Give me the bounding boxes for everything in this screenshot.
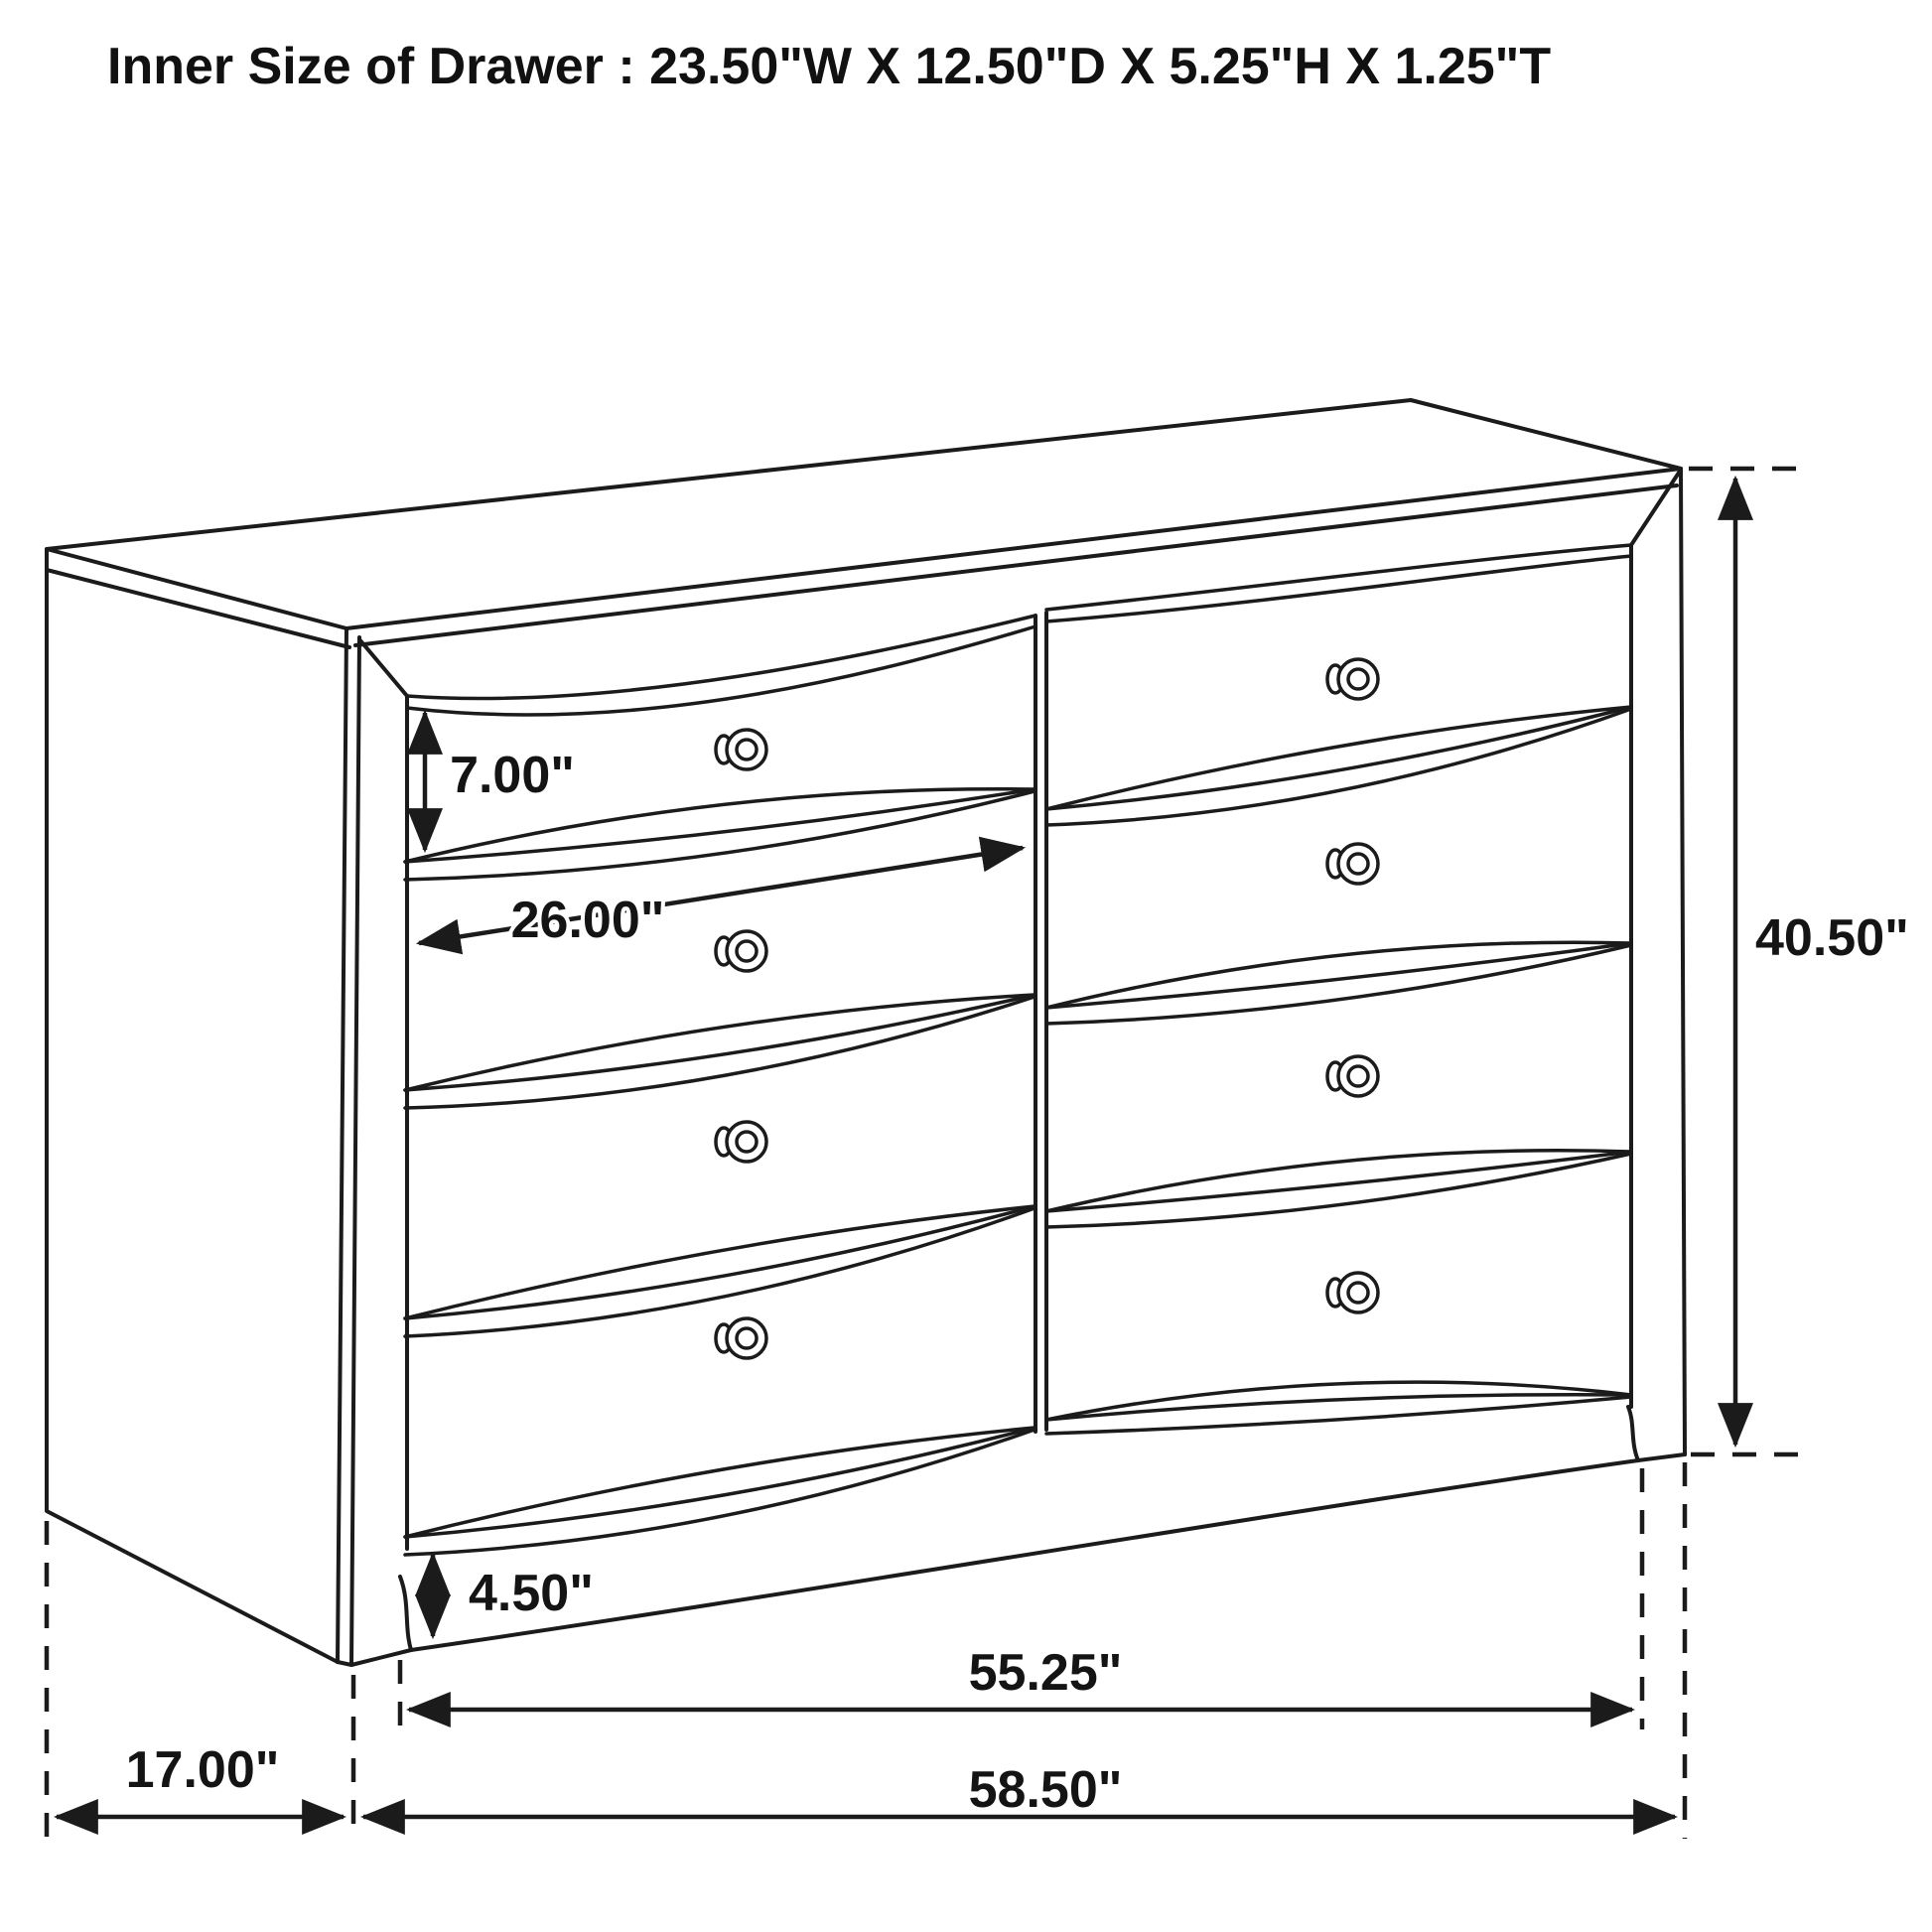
knob-icon xyxy=(1327,844,1378,884)
left-reveal-3 xyxy=(405,1206,1035,1318)
right-reveal-1 xyxy=(1046,707,1631,809)
right-col-top-curve xyxy=(1046,545,1631,610)
right-reveal-1 xyxy=(1046,707,1631,809)
right-reveal-4 xyxy=(1046,1395,1631,1420)
right-foot-bracket xyxy=(1628,1407,1638,1460)
left-reveal-3 xyxy=(405,1208,1035,1336)
knob-icon xyxy=(716,931,766,971)
dresser-dimension-diagram: Inner Size of Drawer : 23.50"W X 12.50"D… xyxy=(0,0,1932,1932)
overall-width-label: 58.50" xyxy=(969,1761,1123,1819)
left-foot-bracket xyxy=(400,1577,411,1650)
left-reveal-2 xyxy=(405,997,1035,1108)
knob-icon xyxy=(716,730,766,769)
right-reveal-3 xyxy=(1046,1154,1631,1227)
knob-icon xyxy=(1327,1056,1378,1096)
base-rail-bottom xyxy=(411,1460,1638,1650)
front-left-stile-outer xyxy=(338,628,346,1662)
front-left-stile-inner xyxy=(351,637,359,1665)
left-reveal-3 xyxy=(405,1206,1035,1318)
left-reveal-4 xyxy=(405,1430,1035,1555)
right-reveal-1 xyxy=(1046,709,1631,825)
arrow-drawer-width xyxy=(419,848,1023,943)
extension-lines xyxy=(47,469,1807,1839)
dresser-outline xyxy=(47,400,1685,1665)
side-panel-edge xyxy=(47,549,338,1662)
overall-height-label: 40.50" xyxy=(1755,909,1909,967)
right-foot-bottom xyxy=(1638,1454,1685,1460)
left-reveal-4 xyxy=(405,1428,1035,1537)
left-reveal-4 xyxy=(405,1428,1035,1537)
top-bevel-left xyxy=(359,639,407,696)
diagram-canvas: Inner Size of Drawer : 23.50"W X 12.50"D… xyxy=(0,0,1932,1932)
knob-icon xyxy=(716,1122,766,1162)
knob-icon xyxy=(1327,1273,1378,1312)
front-width-label: 55.25" xyxy=(969,1644,1123,1702)
top-bevel-right xyxy=(1631,470,1681,545)
right-col-top-curve-2 xyxy=(1046,556,1631,621)
diagram-title: Inner Size of Drawer : 23.50"W X 12.50"D… xyxy=(107,38,1551,95)
front-right-edge xyxy=(1681,469,1685,1454)
side-depth-label: 17.00" xyxy=(126,1741,280,1799)
left-col-top-curve-2 xyxy=(407,626,1035,715)
drawer-front-curves xyxy=(405,545,1631,1555)
drawer-face-height-label: 7.00" xyxy=(450,747,575,804)
base-height-label: 4.50" xyxy=(469,1565,594,1622)
knob-icon xyxy=(716,1318,766,1358)
knob-icon xyxy=(1327,659,1378,699)
drawer-width-label: 26.00" xyxy=(511,892,665,949)
dimension-arrows xyxy=(57,479,1735,1817)
